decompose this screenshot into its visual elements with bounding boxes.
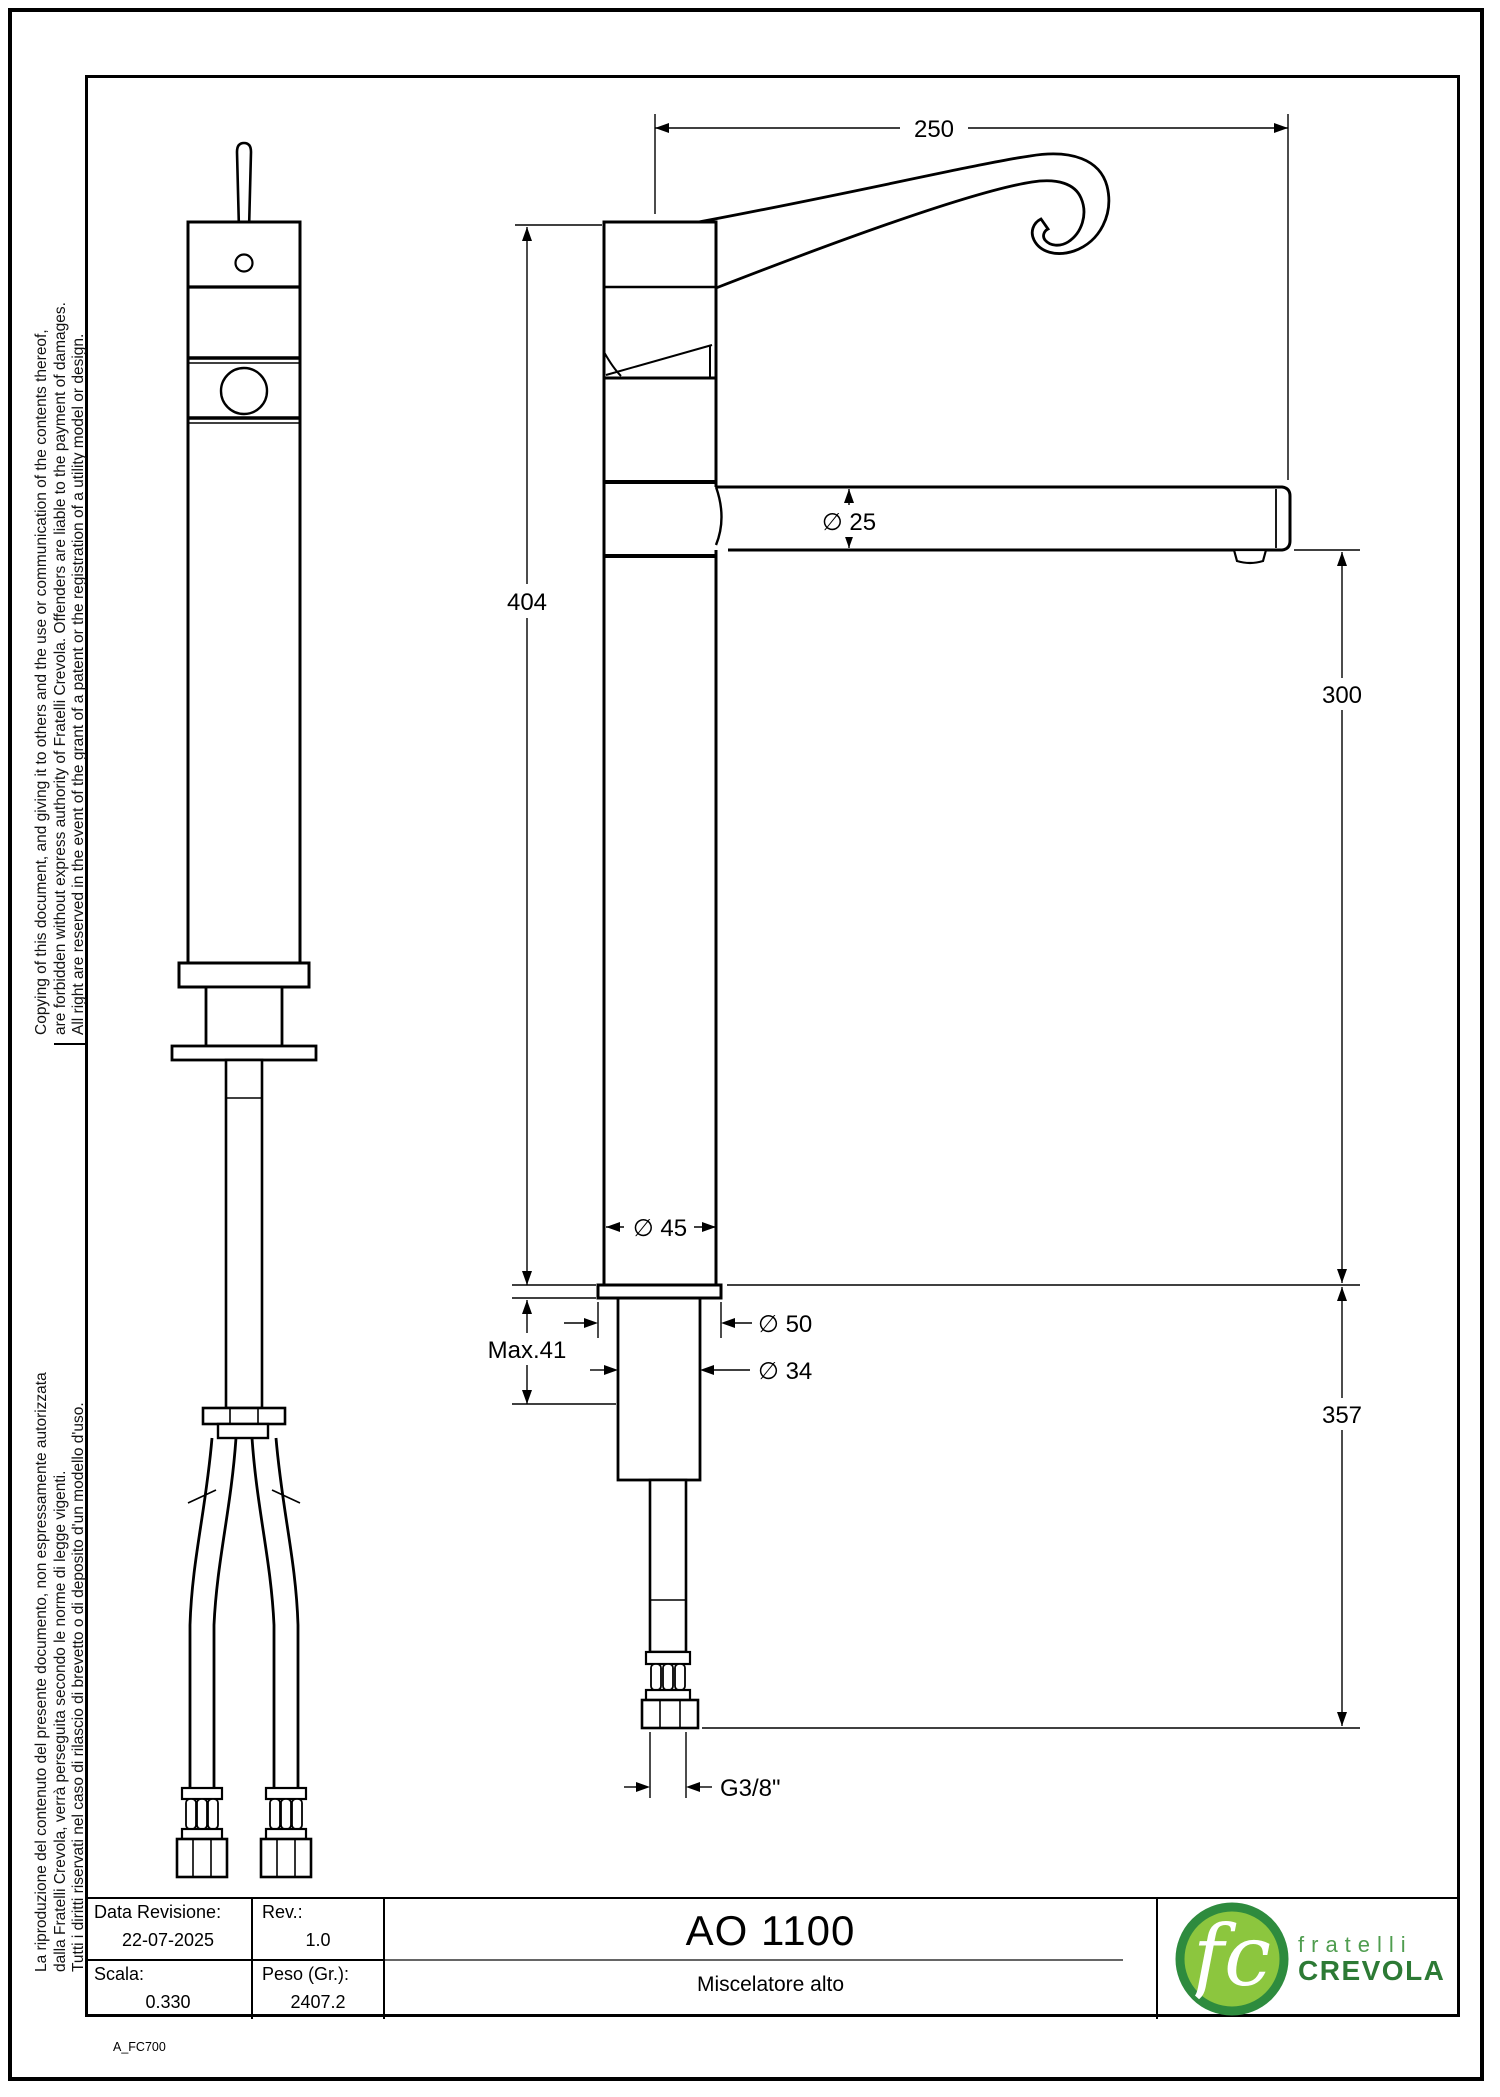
hose-nut-left [177, 1839, 227, 1877]
scale-label: Scala: [85, 1961, 251, 1985]
base-shank [206, 987, 282, 1046]
logo-crevola: CREVOLA [1298, 1955, 1445, 1986]
rev-label: Rev.: [253, 1899, 383, 1923]
title-block: Data Revisione: 22-07-2025 Rev.: 1.0 Sca… [85, 1897, 1460, 2017]
dim-base-diameter: ∅ 50 [758, 1311, 812, 1338]
hose-break-mark [272, 1490, 300, 1503]
product-divider [385, 1959, 1123, 1961]
threaded-shank [618, 1298, 700, 1480]
dim-spout-diameter: ∅ 25 [822, 509, 876, 536]
pivot-pin [236, 255, 253, 272]
scale-value: 0.330 [85, 1992, 251, 2013]
dim-spout-height: 300 [1322, 682, 1362, 709]
spout-tube [716, 487, 1290, 550]
title-block-logo-cell: fc fratelli CREVOLA [1158, 1899, 1460, 2019]
hose-left [190, 1438, 212, 1788]
dim-shank-diameter: ∅ 34 [758, 1358, 812, 1385]
front-view [172, 143, 316, 1877]
logo-monogram: fc [1187, 1907, 1271, 2005]
title-block-scale-cell: Scala: 0.330 [85, 1959, 253, 2019]
dim-body-diameter: ∅ 45 [633, 1215, 687, 1242]
side-view [598, 154, 1290, 1728]
side-hose-nut [642, 1700, 698, 1728]
lever-rod [237, 143, 251, 230]
base-flange [179, 963, 309, 987]
lever-paddle [688, 154, 1109, 288]
title-block-date-cell: Data Revisione: 22-07-2025 [85, 1899, 253, 1959]
spout-outlet [1234, 550, 1266, 563]
logo-fratelli: fratelli [1298, 1932, 1413, 1957]
body-column [188, 222, 300, 963]
inlet-tube [226, 1060, 262, 1408]
title-block-weight-cell: Peso (Gr.): 2407.2 [253, 1959, 385, 2019]
product-code: AO 1100 [385, 1907, 1156, 1955]
faucet-technical-drawing: 250 ∅ 25 404 Max.41 ∅ 45 ∅ 50 ∅ 34 300 3… [0, 0, 1500, 2097]
drawing-sheet: Copying of this document, and giving it … [0, 0, 1500, 2097]
mounting-disc [172, 1046, 316, 1060]
hose-break-mark [188, 1490, 216, 1503]
weight-value: 2407.2 [253, 1992, 383, 2013]
hose-fitting [218, 1424, 268, 1438]
hose-right [276, 1438, 298, 1788]
title-block-rev-cell: Rev.: 1.0 [253, 1899, 385, 1959]
side-hose-tube [650, 1480, 686, 1652]
side-head [604, 222, 716, 378]
aerator-circle [221, 368, 267, 414]
dim-under-length: 357 [1322, 1402, 1362, 1429]
dim-spout-reach: 250 [914, 116, 954, 143]
product-name: Miscelatore alto [385, 1973, 1156, 1997]
title-block-product-cell: AO 1100 Miscelatore alto [385, 1899, 1158, 2019]
dim-max-thickness: Max.41 [488, 1337, 567, 1364]
rev-value: 1.0 [253, 1930, 383, 1951]
document-code: A_FC700 [113, 2040, 166, 2054]
date-label: Data Revisione: [85, 1899, 251, 1923]
base-plate [598, 1285, 721, 1298]
company-logo: fc fratelli CREVOLA [1158, 1899, 1460, 2019]
date-value: 22-07-2025 [85, 1930, 251, 1951]
dim-thread: G3/8" [720, 1775, 781, 1802]
weight-label: Peso (Gr.): [253, 1961, 383, 1985]
dim-total-height: 404 [507, 589, 547, 616]
mounting-nut [203, 1408, 285, 1424]
hose-nut-right [261, 1839, 311, 1877]
